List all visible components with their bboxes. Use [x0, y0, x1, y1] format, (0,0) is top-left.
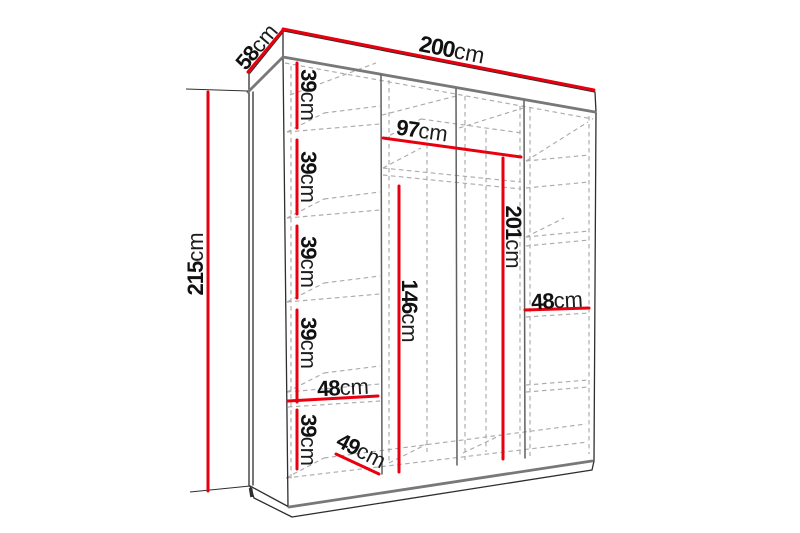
dim-label-total-height: 215cm — [185, 232, 207, 295]
dimension-lines — [186, 29, 594, 492]
dim-label-right-shelf-width: 48cm — [531, 289, 584, 314]
dim-label-hanging-height: 146cm — [398, 279, 420, 342]
dim-line-middle-width — [383, 138, 521, 157]
dim-label-shelf-gap-1: 39cm — [297, 69, 319, 121]
left-foot — [251, 488, 253, 497]
right-column-shelves — [526, 122, 589, 392]
wardrobe-line-drawing — [0, 0, 800, 533]
dim-label-shelf-gap-2: 39cm — [297, 151, 319, 203]
wardrobe-dimensions-diagram: 200cm 58cm 215cm 39cm 39cm 39cm 39cm 39c… — [0, 0, 800, 533]
dim-label-left-shelf-width: 48cm — [317, 376, 370, 401]
dim-label-shelf-gap-3: 39cm — [297, 236, 319, 288]
dim-label-shelf-gap-4: 39cm — [297, 317, 319, 369]
dim-label-interior-height: 201cm — [502, 205, 524, 268]
dim-label-shelf-gap-5: 39cm — [297, 414, 319, 466]
